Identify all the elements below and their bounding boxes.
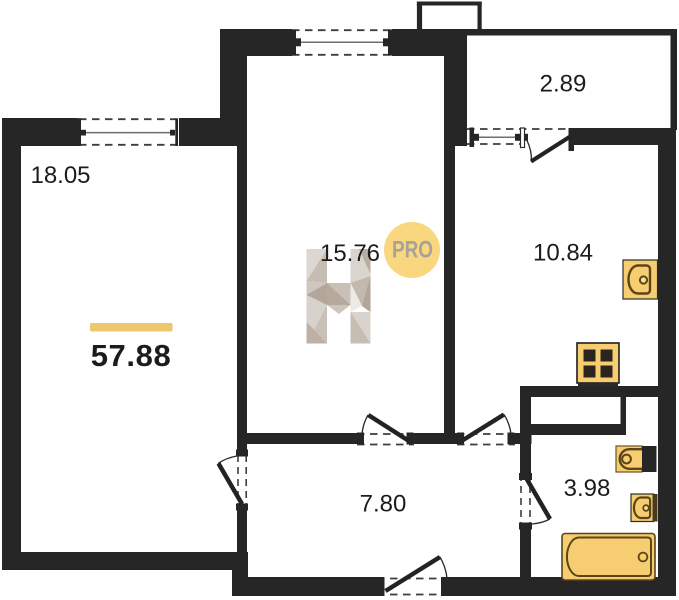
svg-text:15.76: 15.76 (320, 240, 380, 267)
svg-text:7.80: 7.80 (360, 491, 407, 518)
svg-text:18.05: 18.05 (30, 162, 90, 189)
svg-text:2.89: 2.89 (540, 71, 587, 98)
svg-text:57.88: 57.88 (91, 338, 172, 373)
svg-text:PRO: PRO (392, 237, 433, 264)
svg-text:3.98: 3.98 (564, 475, 611, 502)
svg-text:10.84: 10.84 (533, 240, 593, 267)
